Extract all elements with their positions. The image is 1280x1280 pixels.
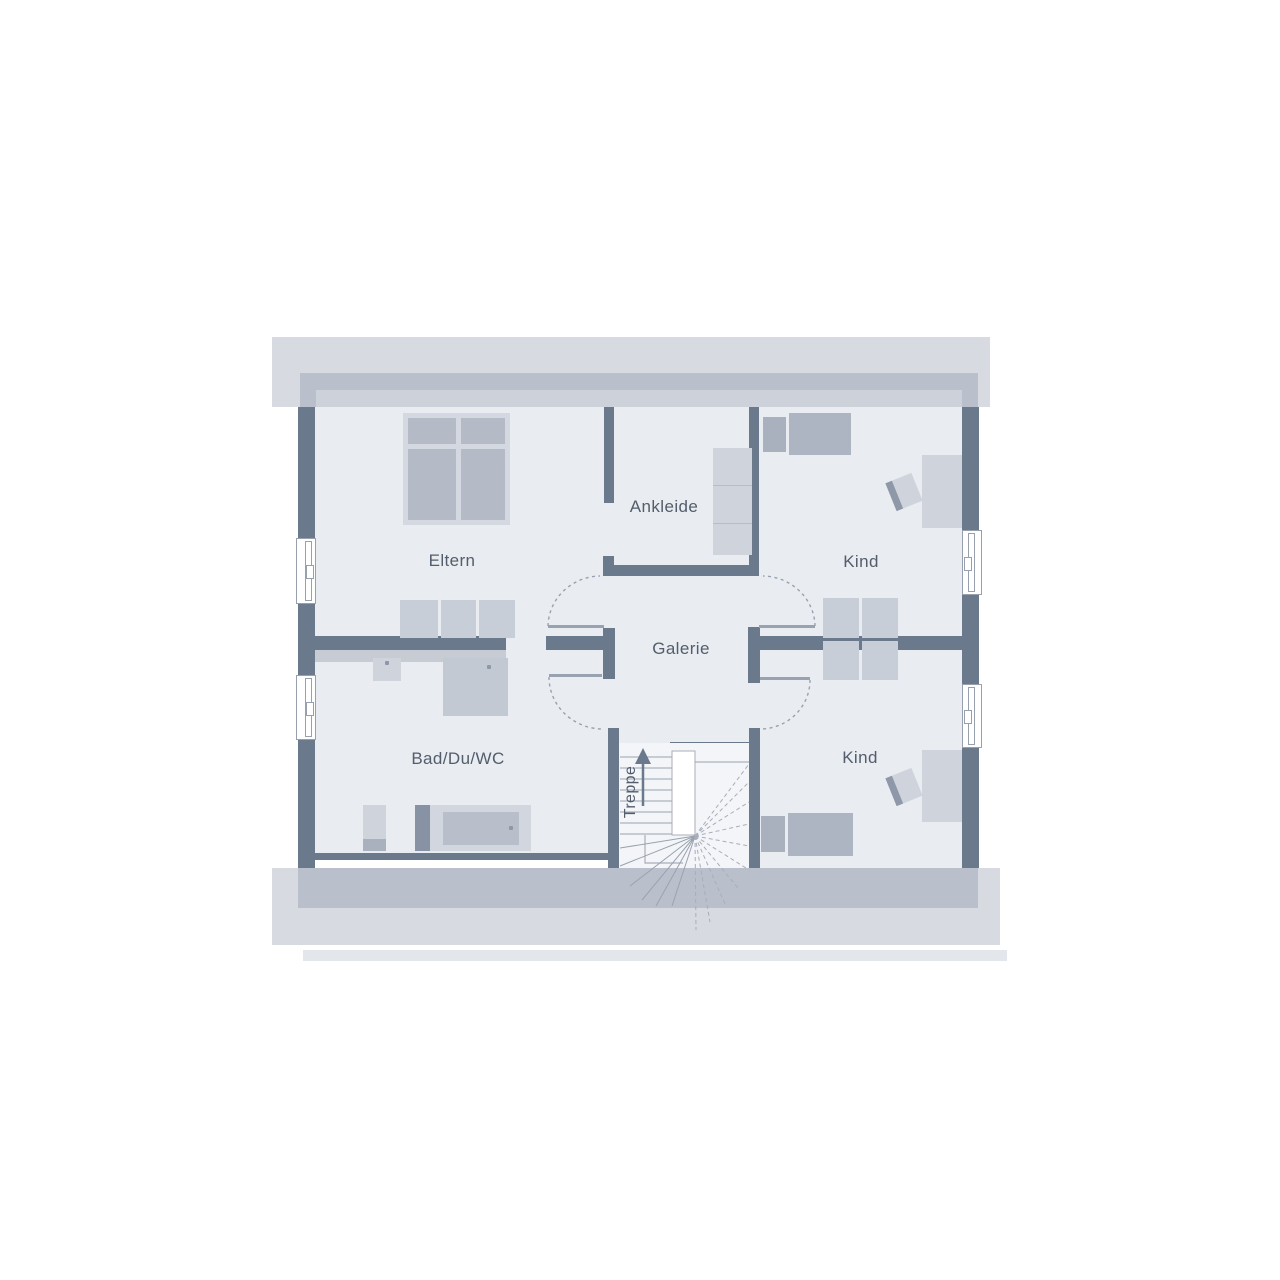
door-swing-kind-top xyxy=(763,576,815,626)
stair-newel xyxy=(672,751,695,835)
room-label-kind-bottom: Kind xyxy=(842,748,878,768)
stair-winders-solid xyxy=(620,836,695,906)
stair-winders-dashed xyxy=(695,764,749,930)
room-label-bad: Bad/Du/WC xyxy=(411,749,504,769)
room-label-treppe: Treppe xyxy=(622,766,640,819)
door-swing-bad xyxy=(549,677,601,729)
room-label-ankleide: Ankleide xyxy=(630,497,698,517)
linework-overlay xyxy=(0,0,1280,1280)
door-swing-eltern xyxy=(548,576,600,626)
room-label-eltern: Eltern xyxy=(429,551,476,571)
room-label-galerie: Galerie xyxy=(652,639,710,659)
floor-plan: Eltern Ankleide Kind Galerie Bad/Du/WC K… xyxy=(0,0,1280,1280)
room-label-kind-top: Kind xyxy=(843,552,879,572)
door-swing-kind-bottom xyxy=(760,680,810,729)
